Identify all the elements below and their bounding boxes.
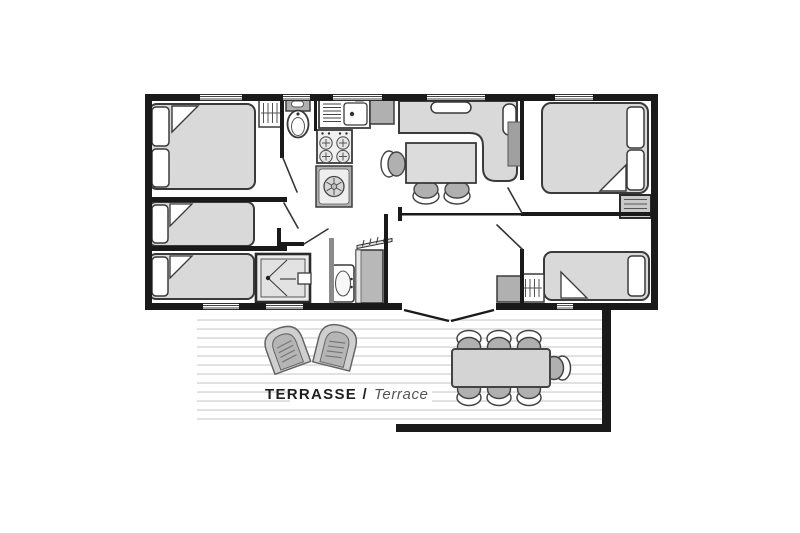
bedroom-single-1 (149, 202, 254, 246)
dining-chair-icon (381, 151, 405, 177)
shower-icon (256, 254, 311, 302)
pillow-icon (627, 107, 644, 148)
wc-room (286, 98, 310, 138)
window-icon (555, 95, 593, 100)
dining-chair-icon (444, 181, 470, 204)
pillow-icon (627, 150, 644, 190)
terrace-label-en: Terrace (374, 386, 429, 403)
washbasin-icon (332, 265, 354, 302)
terrace-wall-bottom (396, 424, 611, 432)
wardrobe-hangers-icon (521, 274, 544, 302)
terrace: TERRASSE / Terrace (197, 310, 611, 432)
toilet-icon (286, 98, 310, 138)
sofa-armrest (508, 122, 521, 166)
window-icon (283, 95, 310, 100)
pillow-icon (152, 149, 169, 187)
dining-table-icon (406, 143, 476, 183)
terrace-label-fr: TERRASSE / (265, 386, 368, 403)
bedroom-single-2 (149, 254, 254, 299)
wardrobe-hangers-icon (259, 99, 282, 127)
window-icon (200, 95, 242, 100)
bathroom-cabinet-icon (356, 250, 383, 303)
window-icon (557, 304, 573, 309)
floor-plan: TERRASSE / Terrace (0, 0, 800, 533)
window-icon (203, 304, 239, 309)
pillow-icon (152, 205, 168, 243)
pillow-icon (152, 107, 169, 146)
pillow-icon (628, 256, 645, 296)
sofa-cushion-icon (431, 102, 471, 113)
terrace-table (452, 349, 550, 387)
fridge-icon (370, 98, 394, 124)
shower-room (256, 254, 311, 302)
stove-icon (317, 130, 352, 163)
window-icon (427, 95, 485, 100)
dining-chair-icon (413, 181, 439, 204)
washing-machine-icon (316, 166, 352, 207)
pillow-icon (152, 257, 168, 296)
terrace-wall-right (602, 310, 611, 432)
window-icon (266, 304, 303, 309)
window-icon (333, 95, 382, 100)
floor-plan-page: TERRASSE / Terrace (0, 0, 800, 533)
cabinet-icon (497, 276, 521, 302)
